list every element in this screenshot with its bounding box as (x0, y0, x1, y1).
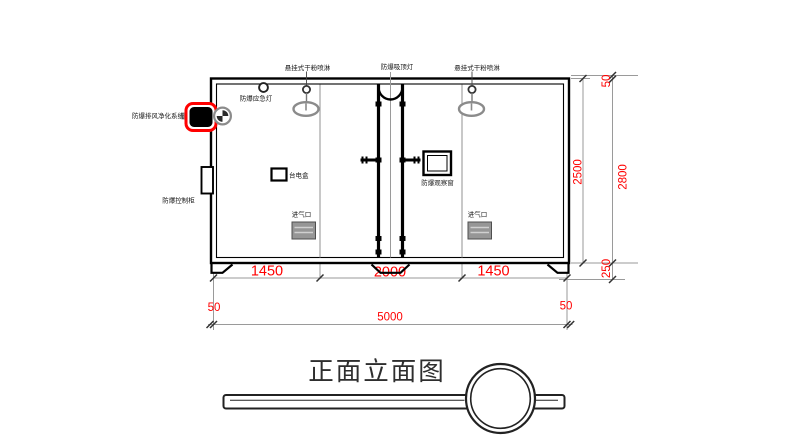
air-inlet-left-icon (292, 222, 316, 239)
air-inlet-right-icon (468, 222, 492, 239)
control-cabinet-icon (202, 167, 214, 194)
dim-seg-left: 1450 (251, 264, 283, 280)
purifier-body (190, 107, 213, 127)
dim-total-width: 5000 (377, 312, 403, 324)
label-observation-window: 防爆观察窗 (421, 178, 454, 187)
label-air-inlet-left: 进气口 (292, 210, 312, 219)
junction-box-icon (272, 169, 287, 181)
label-ceiling-lamp: 防爆吸顶灯 (381, 62, 414, 71)
label-air-inlet-right: 进气口 (468, 210, 488, 219)
foot-left (212, 264, 233, 273)
cad-canvas: 1450 2000 1450 50 5000 50 2500 50 2800 2… (0, 0, 800, 445)
label-exhaust-purifier: 防爆排风净化系统 (132, 111, 185, 120)
elevation-drawing: 1450 2000 1450 50 5000 50 2500 50 2800 2… (0, 0, 800, 445)
title-block: 正面立面图 (224, 357, 565, 433)
title-circle-icon (466, 364, 535, 433)
page-title: 正面立面图 (308, 357, 446, 387)
label-sprinkler-right: 悬挂式干粉喷淋 (454, 63, 500, 72)
label-junction-box: 台电盒 (289, 171, 309, 180)
label-sprinkler-left: 悬挂式干粉喷淋 (285, 63, 331, 72)
label-emergency-light: 防爆应急灯 (240, 94, 273, 103)
dim-wall-right: 50 (560, 301, 573, 313)
label-control-cabinet: 防爆控制柜 (162, 196, 195, 205)
dim-total-height: 2800 (618, 164, 630, 190)
dim-base-height: 250 (601, 259, 613, 278)
dim-wall-left: 50 (208, 302, 221, 314)
sprinkler-hook (303, 86, 310, 93)
dim-seg-right: 1450 (477, 264, 509, 280)
observation-window-icon (424, 152, 452, 176)
foot-right (548, 264, 569, 273)
sprinkler-hook (468, 86, 475, 93)
dim-roof-offset: 50 (601, 75, 613, 88)
emergency-light-icon (259, 83, 268, 92)
dim-body-height: 2500 (573, 159, 585, 185)
